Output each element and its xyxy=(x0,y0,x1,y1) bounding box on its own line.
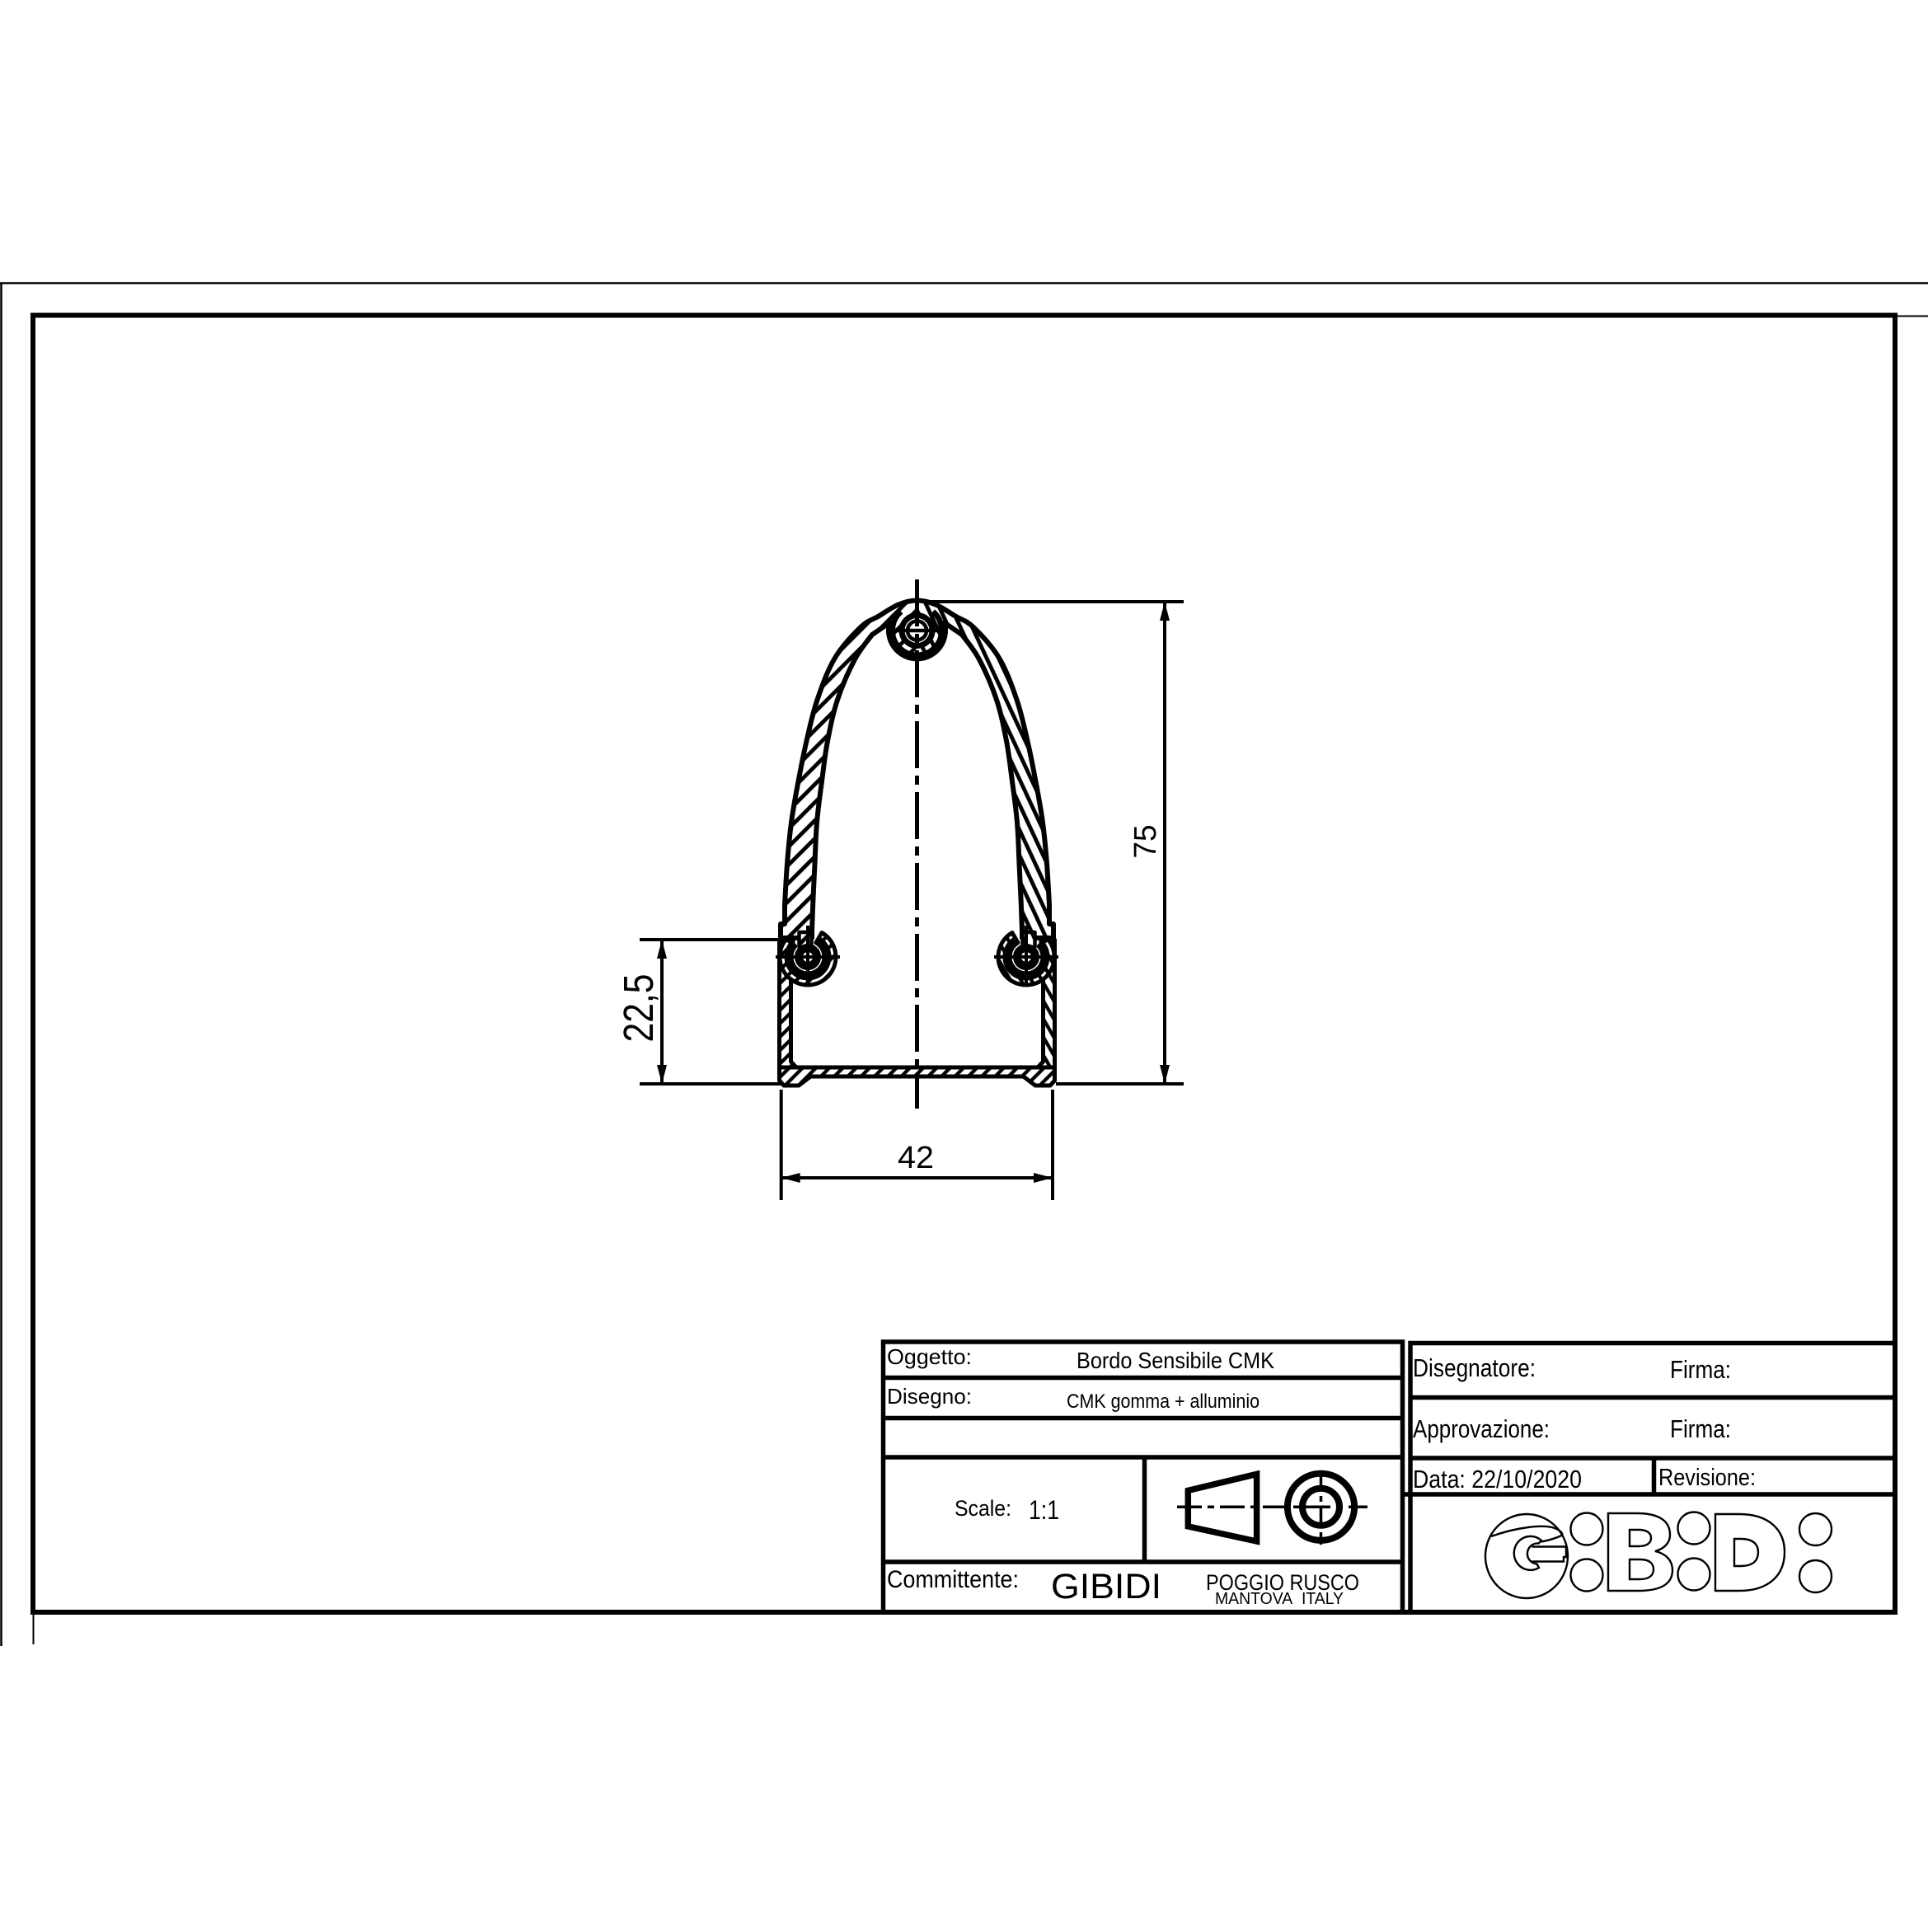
svg-text:Approvazione:: Approvazione: xyxy=(1413,1414,1550,1443)
svg-text:GIBIDI: GIBIDI xyxy=(1051,1568,1161,1606)
svg-text:Oggetto:: Oggetto: xyxy=(887,1344,972,1369)
svg-text:75: 75 xyxy=(1128,825,1163,859)
svg-text:CMK gomma + alluminio: CMK gomma + alluminio xyxy=(1067,1390,1260,1413)
svg-text:Scale:: Scale: xyxy=(955,1496,1011,1521)
svg-text:42: 42 xyxy=(898,1141,934,1175)
svg-text:MANTOVA ITALY: MANTOVA ITALY xyxy=(1215,1590,1344,1608)
svg-text:Bordo Sensibile CMK: Bordo Sensibile CMK xyxy=(1077,1348,1275,1373)
svg-text:Disegnatore:: Disegnatore: xyxy=(1413,1353,1536,1382)
svg-text:Committente:: Committente: xyxy=(887,1566,1019,1593)
svg-text:Revisione:: Revisione: xyxy=(1658,1465,1756,1491)
svg-text:Firma:: Firma: xyxy=(1670,1414,1731,1443)
svg-text:Data: 22/10/2020: Data: 22/10/2020 xyxy=(1413,1465,1582,1494)
svg-text:1:1: 1:1 xyxy=(1029,1495,1059,1525)
svg-text:Disegno:: Disegno: xyxy=(887,1384,972,1409)
svg-text:Firma:: Firma: xyxy=(1670,1355,1731,1384)
svg-text:22,5: 22,5 xyxy=(615,974,662,1043)
